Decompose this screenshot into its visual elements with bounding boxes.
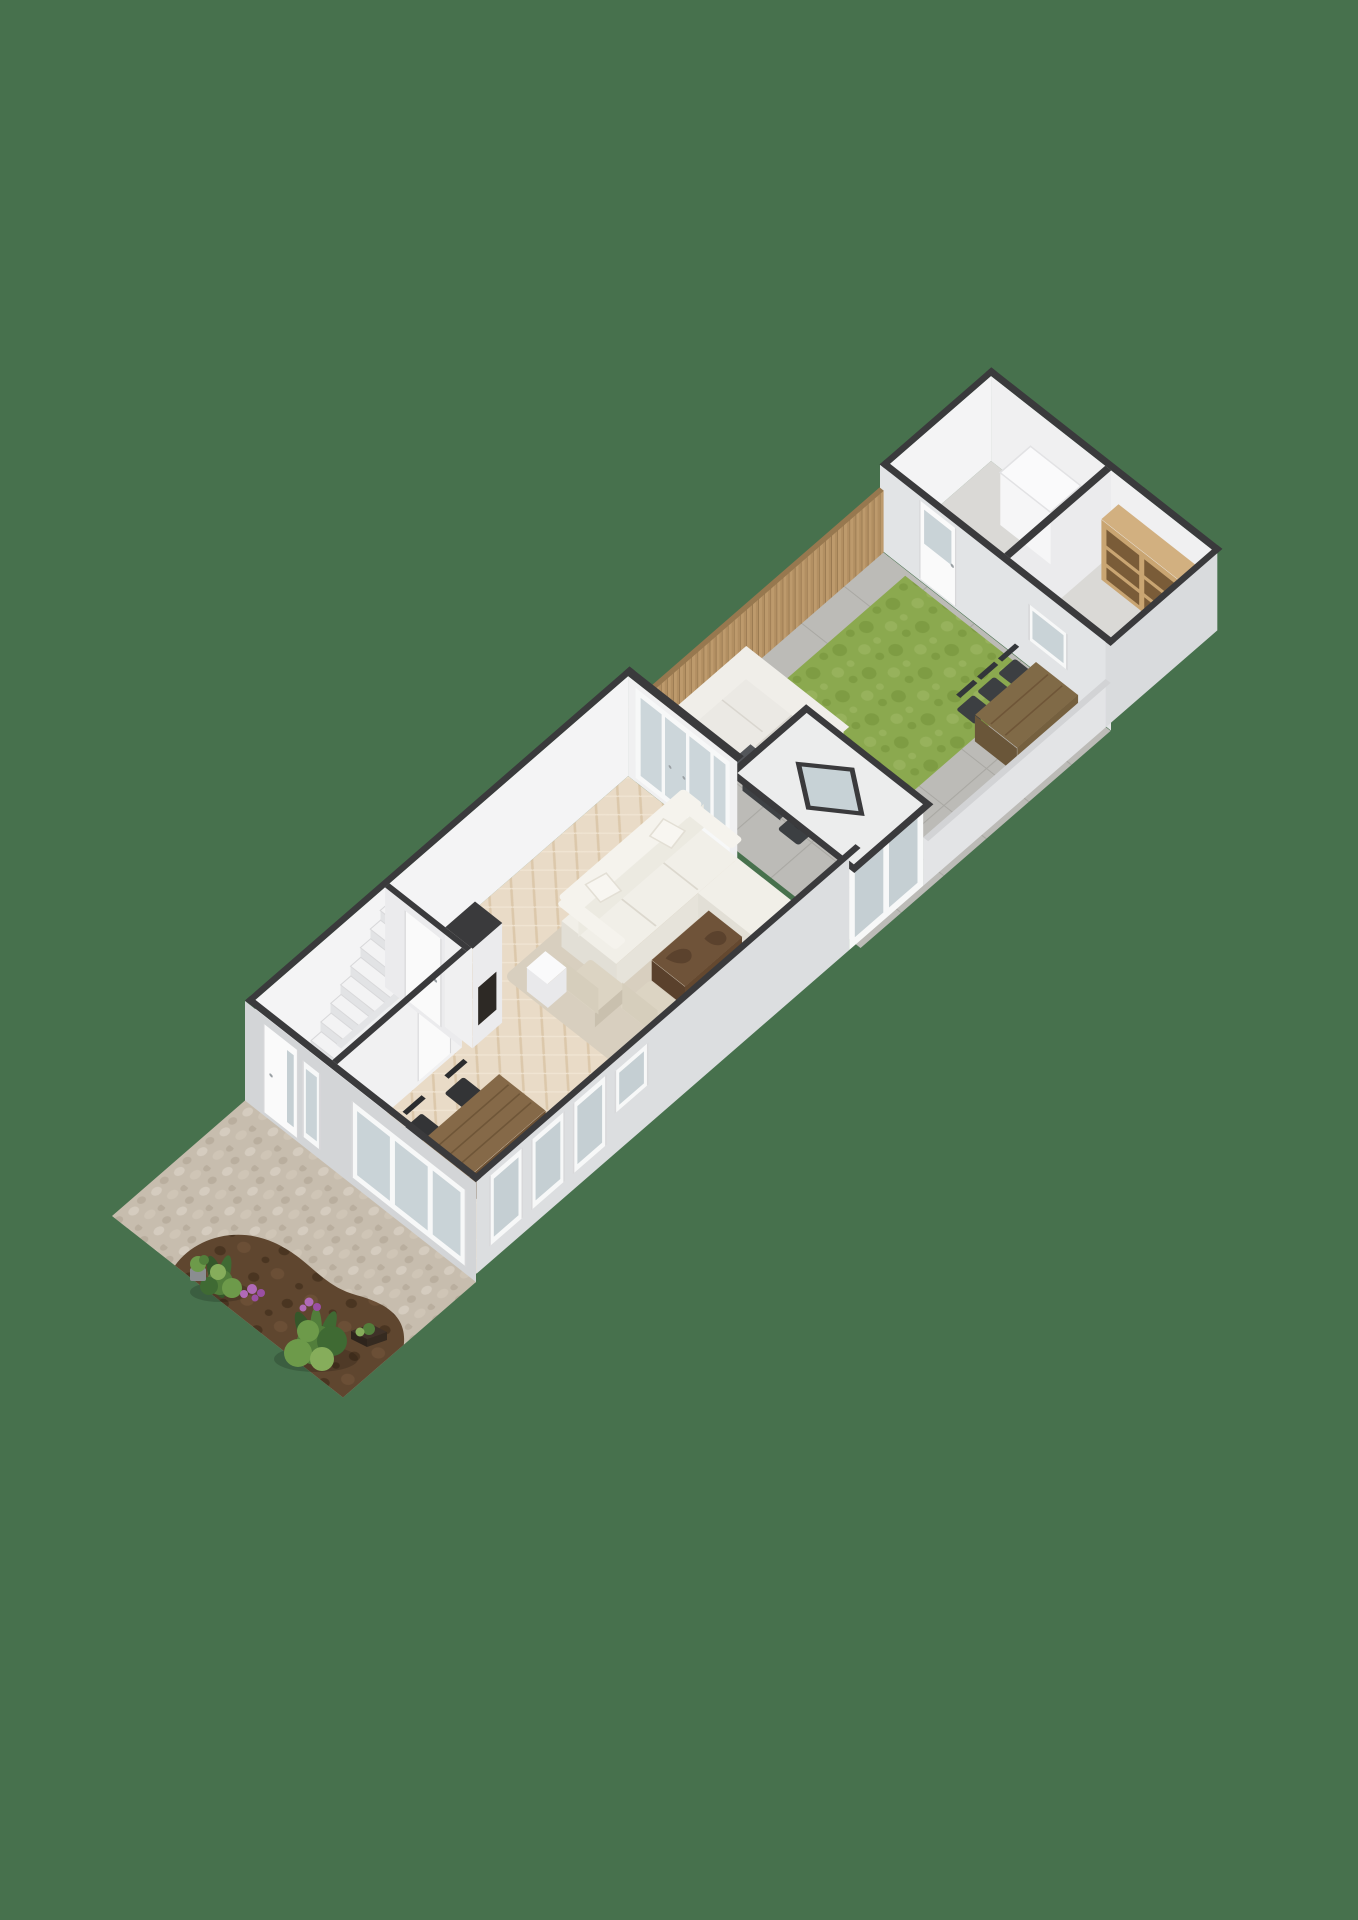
floorplan-canvas	[0, 0, 1358, 1920]
facade-sidelight-window	[303, 1061, 320, 1150]
floorplan-3d-render	[0, 0, 1358, 1920]
